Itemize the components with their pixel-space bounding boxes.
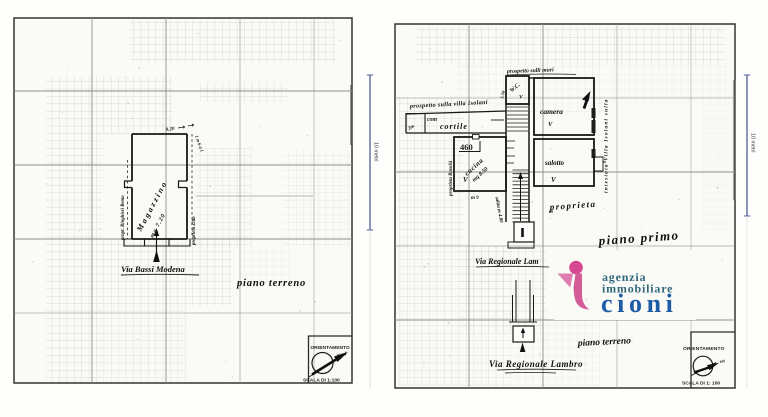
svg-text:propr. Ringhieri Remo: propr. Ringhieri Remo [121, 195, 126, 241]
svg-text:V: V [548, 121, 553, 128]
svg-text:camera: camera [540, 107, 563, 116]
svg-text:m 9: m 9 [471, 196, 479, 201]
svg-text:Via Regionale Lambro: Via Regionale Lambro [489, 359, 583, 369]
svg-text:proprieta Zitto: proprieta Zitto [192, 216, 197, 246]
svg-text:ORIENTAMENTO: ORIENTAMENTO [683, 346, 725, 352]
svg-text:com: com [427, 117, 437, 123]
svg-text:SCALA DI 1: 100: SCALA DI 1: 100 [682, 381, 720, 387]
svg-text:salotto: salotto [544, 159, 565, 167]
svg-text:proprieta Ronchi: proprieta Ronchi [449, 160, 454, 197]
svg-text:Via Bassi Modena: Via Bassi Modena [121, 264, 186, 274]
svg-text:10 metri: 10 metri [750, 133, 756, 152]
svg-text:piano terreno: piano terreno [236, 278, 306, 289]
svg-text:cortile: cortile [440, 122, 468, 131]
svg-text:460: 460 [460, 142, 473, 152]
svg-text:cioni: cioni [601, 289, 677, 318]
svg-text:intestata Villa Isolani sulla: intestata Villa Isolani sulla [604, 98, 610, 193]
svg-text:SCALA DI 1:100: SCALA DI 1:100 [303, 378, 340, 384]
svg-text:ORIENTAMENTO: ORIENTAMENTO [311, 345, 350, 351]
svg-text:10 metri: 10 metri [373, 142, 379, 161]
svg-text:Via Regionale Lam: Via Regionale Lam [475, 257, 539, 266]
